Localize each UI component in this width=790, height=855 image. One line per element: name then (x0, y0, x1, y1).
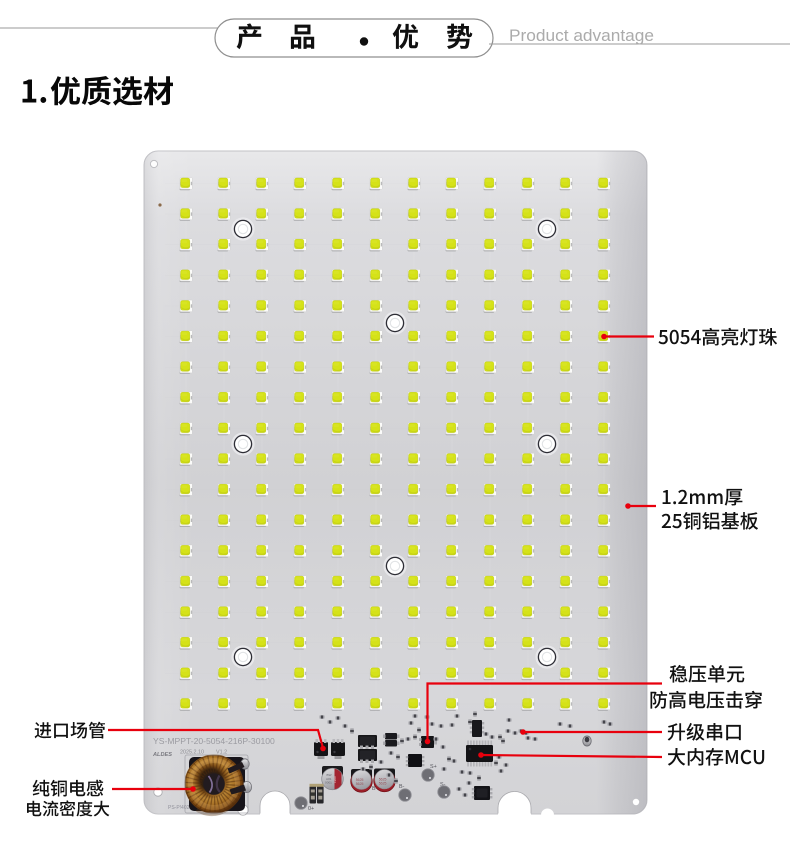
svg-text:5625: 5625 (379, 781, 387, 785)
svg-text:YS-MPPT-20-5054-216P-30100: YS-MPPT-20-5054-216P-30100 (153, 736, 275, 746)
svg-text:0+: 0+ (308, 806, 314, 812)
svg-text:5625: 5625 (356, 782, 364, 786)
svg-text:ALDES: ALDES (152, 752, 172, 758)
svg-text:0001: 0001 (325, 781, 332, 785)
svg-text:1300: 1300 (333, 776, 337, 783)
svg-text:PS-P!4020: PS-P!4020 (168, 805, 192, 811)
svg-text:Product advantage: Product advantage (509, 26, 654, 45)
